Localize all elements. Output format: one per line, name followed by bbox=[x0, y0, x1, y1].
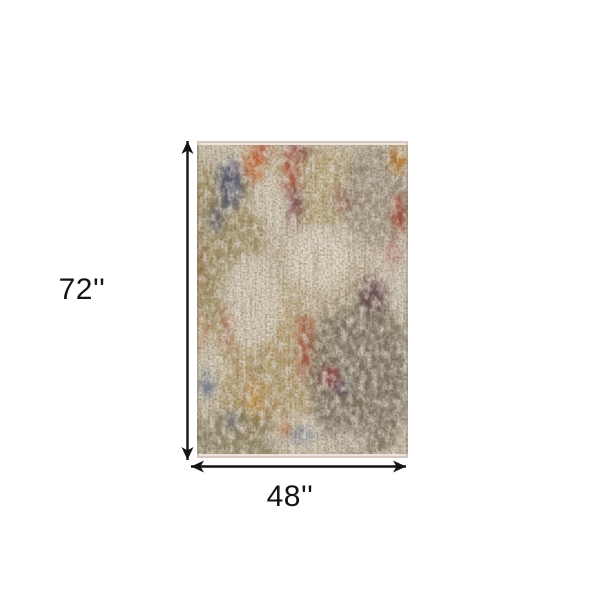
product-dimension-diagram: 72'' 48'' bbox=[0, 0, 600, 600]
height-dimension-label: 72'' bbox=[59, 273, 106, 307]
rug-image bbox=[197, 141, 408, 458]
width-dimension-label: 48'' bbox=[267, 480, 314, 514]
rug-grain bbox=[197, 141, 408, 458]
rug-texture bbox=[197, 141, 408, 458]
